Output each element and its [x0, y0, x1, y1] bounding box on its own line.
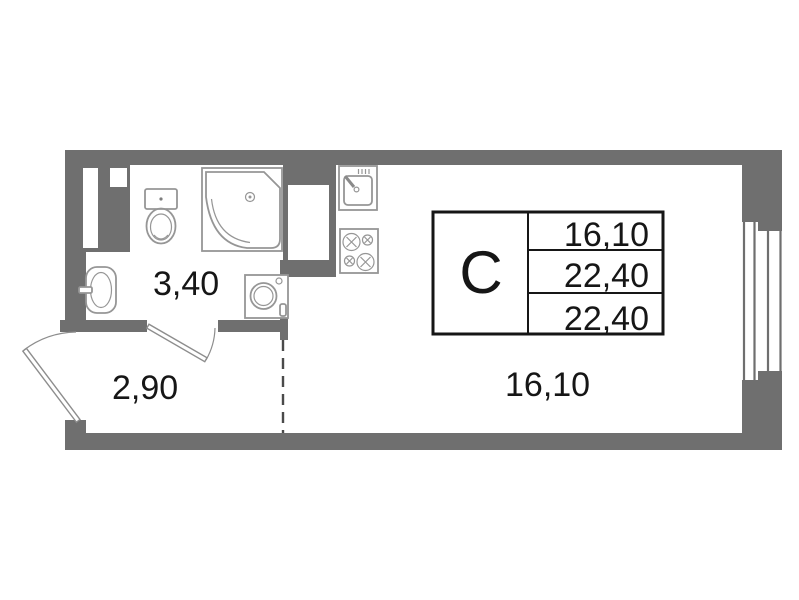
- room-label-hallway: 2,90: [112, 369, 178, 407]
- bathroom-door-leaf: [147, 324, 207, 361]
- window-bottom-spacer: [758, 371, 782, 380]
- entry-door-icon: [23, 332, 80, 422]
- wall-right-upper-pier: [742, 165, 782, 222]
- toilet-icon: [145, 189, 177, 244]
- entry-door-swing-arc: [24, 332, 76, 350]
- bathroom-door-icon: [147, 324, 215, 361]
- window-top-spacer: [758, 222, 782, 231]
- apartment-stamp-table: С 16,10 22,40 22,40: [433, 212, 663, 338]
- room-label-bathroom: 3,40: [153, 265, 219, 303]
- wall-bottom: [65, 433, 782, 450]
- wall-bathroom-bottom-right: [218, 320, 288, 332]
- corner-shower-icon: [202, 168, 282, 251]
- bathroom-door-swing-arc: [206, 328, 215, 360]
- stamp-type-label: С: [459, 239, 502, 306]
- wall-bathroom-bottom-left: [65, 320, 147, 332]
- washing-machine-icon: [245, 275, 288, 318]
- kitchen-sink-icon: [339, 166, 377, 210]
- wall-right-lower-pier: [742, 380, 782, 433]
- floor-plan-canvas: 3,40 2,90 16,10 С 16,10 22,40 22,40: [0, 0, 799, 600]
- floor-plan-drawing: 3,40 2,90 16,10 С 16,10 22,40 22,40: [0, 0, 799, 600]
- vent-shaft-niche-small: [110, 168, 127, 187]
- room-label-main-room: 16,10: [505, 366, 590, 404]
- stamp-value-row2: 22,40: [564, 257, 649, 295]
- vent-shaft-niche-vertical: [83, 168, 98, 248]
- stamp-value-row3: 22,40: [564, 300, 649, 338]
- stamp-value-row1: 16,10: [564, 216, 649, 254]
- vent-shaft-niche-kitchen: [288, 185, 329, 260]
- window-icon: [744, 222, 782, 380]
- stove-icon: [340, 229, 378, 273]
- wall-top: [65, 150, 782, 165]
- entry-door-leaf: [23, 348, 80, 422]
